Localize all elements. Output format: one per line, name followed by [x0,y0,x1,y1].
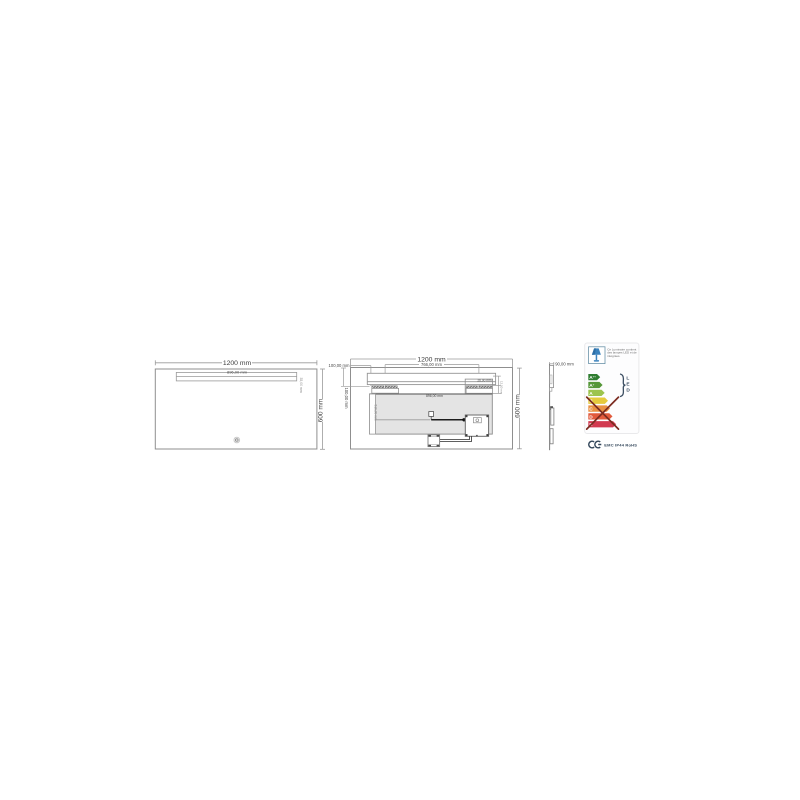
svg-text:600 mm: 600 mm [514,394,521,418]
svg-text:600 mm: 600 mm [318,398,325,422]
svg-text:D: D [589,414,593,420]
svg-text:intégrées.: intégrées. [607,354,620,358]
svg-text:A: A [589,391,593,397]
svg-text:12,50 mm: 12,50 mm [500,381,504,395]
svg-text:90,00 mm: 90,00 mm [555,361,574,366]
svg-text:896,00 mm: 896,00 mm [426,394,443,398]
svg-text:516,00 mm: 516,00 mm [373,405,377,421]
svg-text:896,00 mm: 896,00 mm [227,370,248,375]
svg-text:C: C [589,407,593,413]
svg-text:766,00 mm: 766,00 mm [421,362,442,367]
svg-text:1200 mm: 1200 mm [223,360,252,367]
svg-text:D: D [626,388,630,394]
svg-text:26,00 mm: 26,00 mm [477,379,492,383]
svg-text:35,00 mm: 35,00 mm [299,378,303,393]
svg-text:EMC IP44 RoHS: EMC IP44 RoHS [604,442,637,447]
svg-text:L: L [626,376,629,382]
svg-text:100,00 mm: 100,00 mm [344,388,349,409]
svg-text:100,00 mm: 100,00 mm [329,363,350,368]
